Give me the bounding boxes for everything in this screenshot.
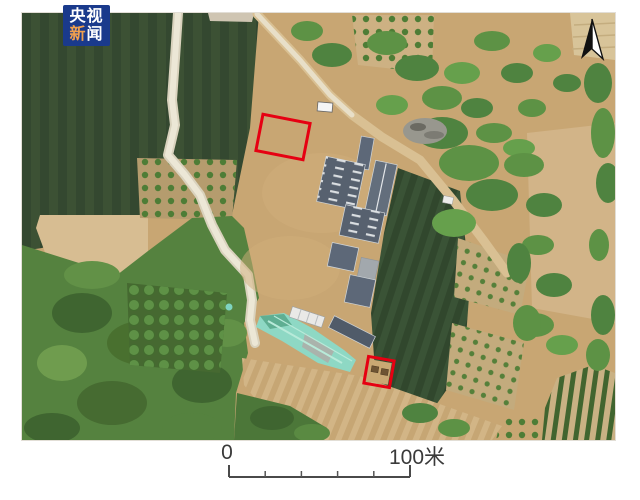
logo-line2: 新闻 bbox=[69, 26, 103, 44]
small-tarp-dot bbox=[226, 304, 233, 311]
logo-line1: 央视 bbox=[69, 8, 103, 26]
rubble-patch bbox=[403, 118, 447, 144]
aerial-photo bbox=[22, 13, 615, 440]
white-truck bbox=[317, 102, 333, 112]
compound-dirt-patch bbox=[240, 236, 340, 300]
scale-start-label: 0 bbox=[212, 441, 242, 465]
cctv-news-logo-badge: 央视 新闻 bbox=[63, 5, 110, 46]
logo-line2-char2: 闻 bbox=[87, 26, 104, 43]
scale-bar-ruler bbox=[223, 463, 423, 481]
red-marker-lower bbox=[364, 356, 394, 387]
news-image: 央视 新闻 0 100米 bbox=[0, 0, 640, 500]
logo-line2-char1: 新 bbox=[69, 26, 86, 43]
top-edge-strip bbox=[208, 13, 254, 22]
